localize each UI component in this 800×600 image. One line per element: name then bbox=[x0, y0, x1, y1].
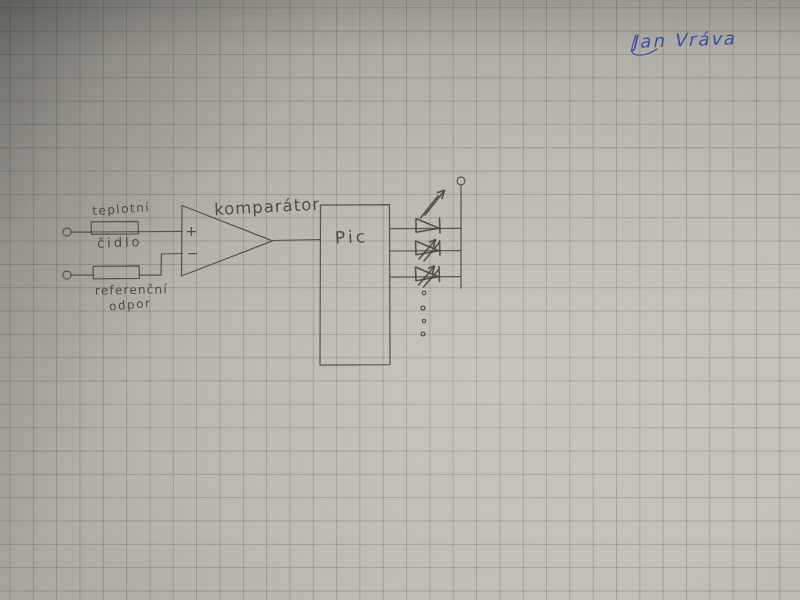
comparator-output-wire bbox=[273, 240, 321, 241]
reference-resistor-label-line2: odpor bbox=[108, 296, 151, 314]
circuit-schematic: teplotní čidlo referenční odpor + − komp… bbox=[0, 0, 800, 600]
led-emission-arrow bbox=[421, 190, 445, 218]
supply-rail bbox=[457, 177, 465, 288]
graph-paper-photo: teplotní čidlo referenční odpor + − komp… bbox=[0, 0, 800, 600]
supply-terminal bbox=[457, 177, 465, 185]
reference-resistor bbox=[93, 254, 182, 279]
input-terminal-bottom bbox=[63, 271, 93, 279]
temperature-sensor-resistor bbox=[91, 221, 182, 234]
comparator-label: komparátor bbox=[214, 195, 321, 220]
temperature-sensor-label-line2: čidlo bbox=[97, 234, 143, 251]
reference-resistor-label-line1: referenční bbox=[95, 282, 168, 297]
input-terminal-top bbox=[63, 228, 91, 236]
comparator-minus-label: − bbox=[187, 245, 199, 261]
author-signature: Jan Vráva bbox=[630, 27, 737, 52]
led-icon bbox=[416, 218, 440, 233]
temperature-sensor-label-line1: teplotní bbox=[92, 200, 151, 218]
comparator-plus-label: + bbox=[186, 223, 198, 239]
more-leds-dots bbox=[421, 291, 426, 336]
pic-label: Pic bbox=[334, 226, 368, 248]
